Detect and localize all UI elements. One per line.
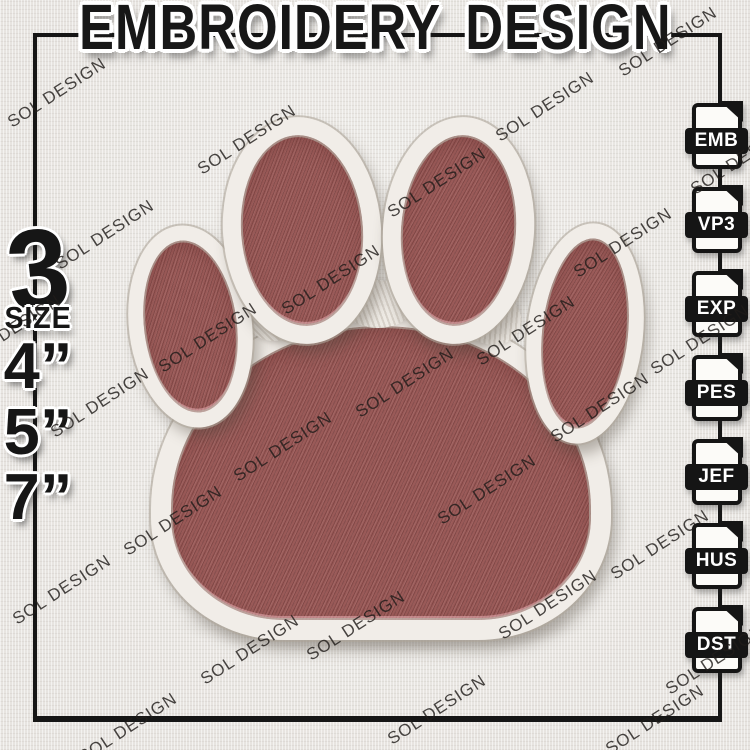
format-label: VP3 — [685, 212, 748, 238]
format-icon-vp3: VP3 — [685, 187, 748, 257]
embroidery-product-image: 3 SIZE 4” 5” 7” EMBVP3EXPPESJEFHUSDST SO… — [0, 0, 750, 750]
title-banner: EMBROIDERY DESIGN — [0, 0, 750, 62]
format-icon-hus: HUS — [685, 523, 748, 593]
format-icon-dst: DST — [685, 607, 748, 677]
format-label: JEF — [685, 464, 748, 490]
format-icon-emb: EMB — [685, 103, 748, 173]
format-icon-pes: PES — [685, 355, 748, 425]
format-icon-exp: EXP — [685, 271, 748, 341]
page-title: EMBROIDERY DESIGN — [79, 0, 671, 62]
format-label: HUS — [685, 548, 748, 574]
format-label: EMB — [685, 128, 748, 154]
format-label: DST — [685, 632, 748, 658]
file-format-column: EMBVP3EXPPESJEFHUSDST — [0, 0, 750, 750]
format-label: EXP — [685, 296, 748, 322]
format-label: PES — [685, 380, 748, 406]
format-icon-jef: JEF — [685, 439, 748, 509]
